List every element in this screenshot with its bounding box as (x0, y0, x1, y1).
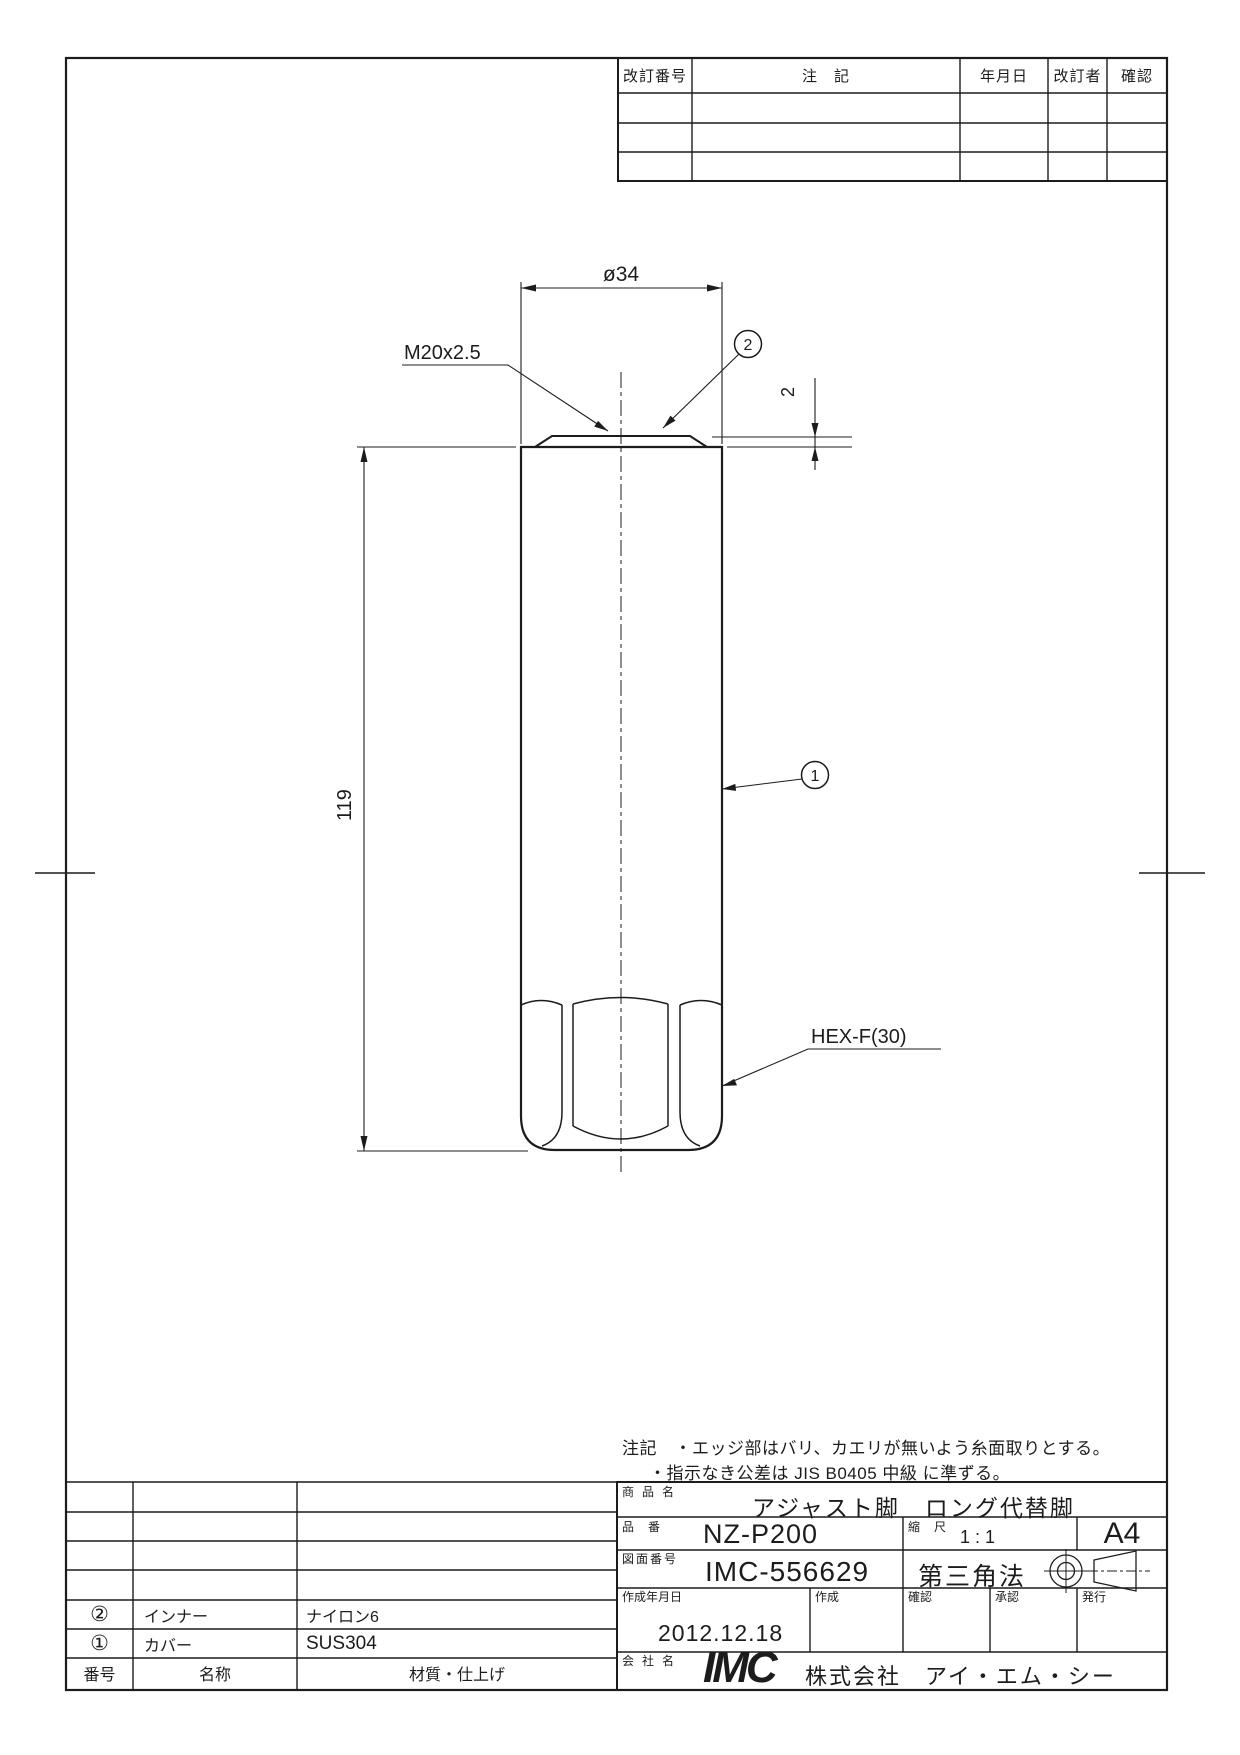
drawing-sheet: ø34 M20x2.5 2 119 HEX-F(30) 2 1 改訂番号 注 記… (0, 0, 1240, 1755)
note-line-1: 注記 ・エッジ部はバリ、カエリが無いよう糸面取りとする。 (622, 1434, 1110, 1459)
parts-row-1-name: カバー (144, 1629, 192, 1658)
scale-value: 1 : 1 (960, 1527, 995, 1548)
balloon-1-arrow (722, 784, 736, 791)
product-name-label: 商品名 (622, 1486, 682, 1498)
parts-row-1-material: SUS304 (306, 1629, 377, 1658)
product-name-value: アジャスト脚 ロング代替脚 (752, 1489, 1075, 1523)
revision-col-revision-no: 改訂番号 (618, 58, 692, 93)
dim-cap-text: 2 (778, 387, 798, 397)
scale-label: 縮尺 (908, 1521, 960, 1533)
hex-edge-right-outer (680, 1005, 700, 1146)
revision-col-note: 注 記 (692, 58, 960, 93)
projection-method: 第三角法 (918, 1557, 1026, 1593)
parts-row-2-material: ナイロン6 (306, 1600, 379, 1629)
parts-row-1-no: ① (66, 1629, 133, 1658)
dim-length-lines (357, 447, 528, 1151)
third-angle-symbol (1044, 1549, 1150, 1593)
thread-leader (402, 365, 608, 431)
parts-row-2-no: ② (66, 1600, 133, 1629)
paper-size: A4 (1077, 1517, 1167, 1550)
approved-label: 承認 (995, 1591, 1019, 1603)
revision-col-date: 年月日 (960, 58, 1048, 93)
dim-diameter-lines (521, 282, 722, 444)
dim-length-text: 119 (334, 789, 356, 821)
hex-callout-text: HEX-F(30) (811, 1026, 907, 1048)
balloon-1-text: 1 (811, 768, 820, 785)
drawing-no-label: 図面番号 (622, 1553, 678, 1565)
part-no-value: NZ-P200 (703, 1519, 818, 1550)
checked-label: 確認 (908, 1591, 932, 1603)
drawing-no-value: IMC-556629 (705, 1556, 869, 1588)
parts-header-material: 材質・仕上げ (297, 1658, 617, 1688)
parts-header-no: 番号 (66, 1658, 133, 1688)
hex-leader (722, 1049, 941, 1086)
hex-edge-left-outer (542, 1005, 562, 1146)
company-label: 会社名 (622, 1655, 682, 1667)
parts-row-2-name: インナー (144, 1600, 208, 1629)
balloon-2-text: 2 (744, 337, 753, 354)
issued-label: 発行 (1082, 1591, 1106, 1603)
company-logo: IMC (703, 1648, 775, 1688)
thread-leader-arrow (594, 421, 608, 431)
company-name: 株式会社 アイ・エム・シー (805, 1659, 1116, 1691)
created-label: 作成 (815, 1591, 839, 1603)
revision-col-confirm: 確認 (1107, 58, 1167, 93)
revision-col-reviser: 改訂者 (1048, 58, 1107, 93)
part-no-label: 品番 (622, 1521, 674, 1533)
balloon-2-leader (663, 354, 739, 428)
note-line-2: ・指示なき公差は JIS B0405 中級 に準ずる。 (649, 1459, 1010, 1484)
dim-diameter-text: ø34 (603, 263, 640, 286)
date-label: 作成年月日 (622, 1591, 682, 1603)
parts-header-name: 名称 (133, 1658, 297, 1688)
thread-callout-text: M20x2.5 (404, 342, 481, 364)
